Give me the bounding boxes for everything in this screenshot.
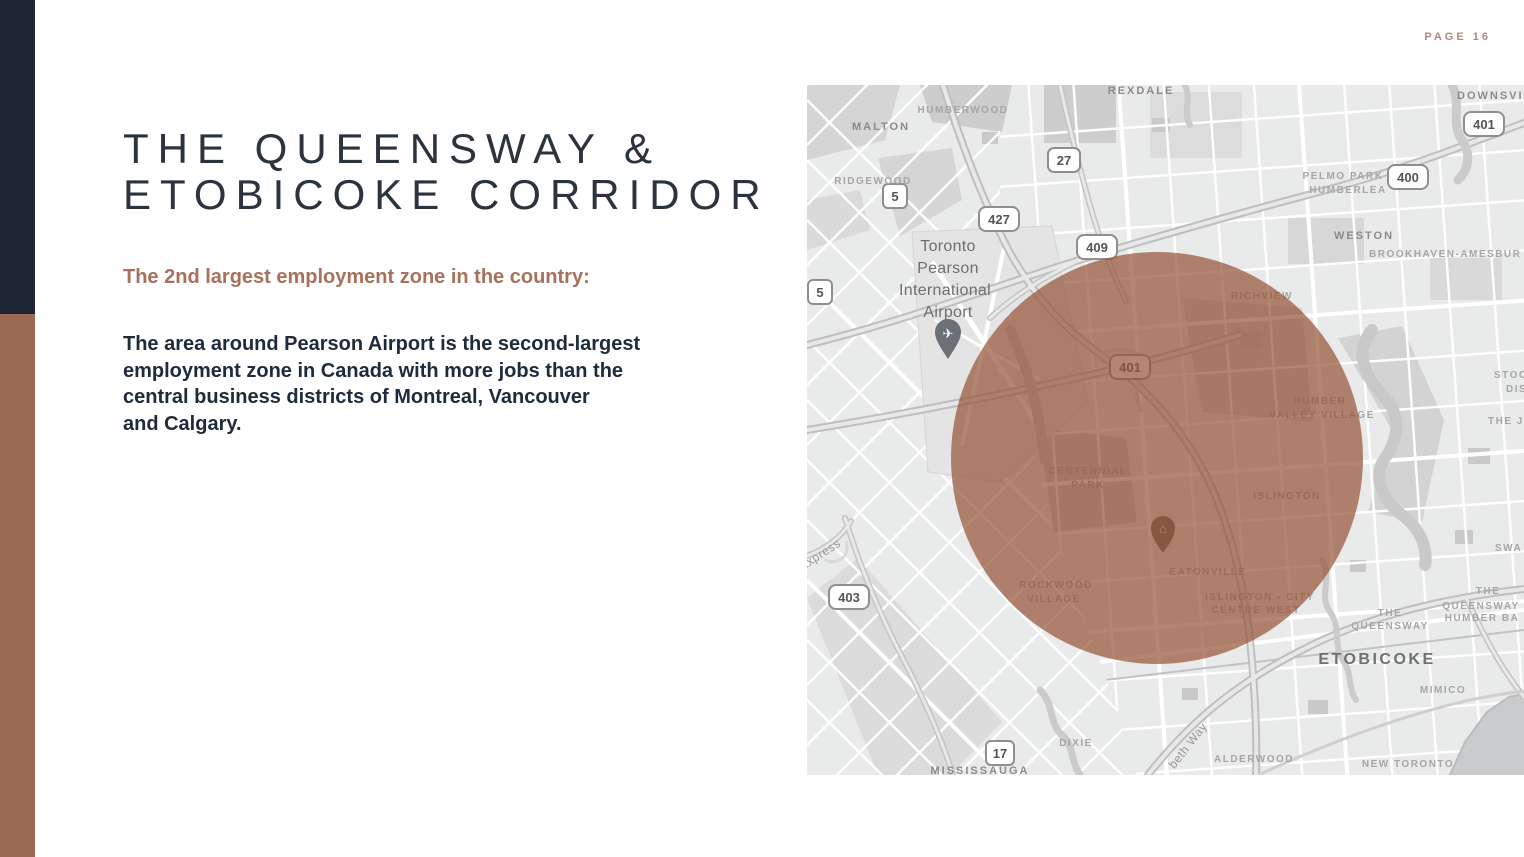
map-label-new-toronto: NEW TORONTO [1362, 759, 1454, 770]
body-paragraph: The area around Pearson Airport is the s… [123, 331, 640, 437]
map-label-malton: MALTON [852, 121, 910, 133]
map-label-the-queensway-2a: THE [1476, 586, 1501, 597]
title-line-2: ETOBICOKE CORRIDOR [123, 171, 770, 218]
map-label-dixie: DIXIE [1059, 738, 1093, 749]
svg-text:5: 5 [891, 189, 898, 204]
shield-5: 5 [883, 184, 907, 208]
svg-text:427: 427 [988, 212, 1010, 227]
shield-403: 403 [829, 585, 869, 609]
sidebar-accent-brown [0, 314, 35, 857]
map-label-the-queensway-1b: QUEENSWAY [1351, 621, 1429, 632]
map-label-stockyards: STOC [1494, 370, 1524, 381]
body-line: and Calgary. [123, 411, 640, 438]
map-label-ridgewood: RIDGEWOOD [834, 176, 911, 187]
map-label-humberlea: HUMBERLEA [1309, 185, 1386, 196]
shield-5: 5 [808, 280, 832, 304]
map-label-mimico: MIMICO [1420, 685, 1466, 696]
map-svg: 27 5 5 427 409 401 400 401 403 17 HUMBER… [807, 85, 1524, 775]
shield-400: 400 [1388, 165, 1428, 189]
map-label-mississauga: MISSISSAUGA [930, 765, 1029, 775]
svg-text:Airport: Airport [923, 304, 972, 321]
map-label-rexdale: REXDALE [1108, 85, 1175, 97]
svg-text:17: 17 [993, 746, 1007, 761]
shield-17: 17 [986, 741, 1014, 765]
map-label-brookhaven: BROOKHAVEN-AMESBUR [1369, 249, 1521, 260]
map-label-humberwood: HUMBERWOOD [918, 105, 1009, 116]
map-label-district: DIS [1506, 384, 1524, 395]
page-number: PAGE 16 [1424, 31, 1491, 43]
map-label-humber-bay: HUMBER BA [1445, 613, 1520, 624]
map-label-weston: WESTON [1334, 230, 1394, 242]
map-label-alderwood: ALDERWOOD [1214, 754, 1294, 765]
svg-text:5: 5 [816, 285, 823, 300]
subtitle: The 2nd largest employment zone in the c… [123, 266, 590, 289]
svg-text:Pearson: Pearson [917, 260, 979, 277]
map-label-etobicoke: ETOBICOKE [1318, 651, 1435, 668]
svg-text:Toronto: Toronto [920, 238, 975, 255]
title-line-1: THE QUEENSWAY & [123, 125, 661, 172]
svg-text:International: International [899, 282, 991, 299]
shield-27: 27 [1048, 148, 1080, 172]
svg-text:403: 403 [838, 590, 860, 605]
shield-401: 401 [1464, 112, 1504, 136]
svg-text:27: 27 [1057, 153, 1071, 168]
map-image: 27 5 5 427 409 401 400 401 403 17 HUMBER… [807, 85, 1524, 775]
map-label-swansea: SWA [1495, 543, 1522, 554]
shield-409: 409 [1077, 235, 1117, 259]
page-title: THE QUEENSWAY &ETOBICOKE CORRIDOR [123, 126, 770, 218]
svg-text:409: 409 [1086, 240, 1108, 255]
map-label-downsview: DOWNSVIE [1457, 90, 1524, 102]
map-label-the-queensway-1a: THE [1378, 608, 1403, 619]
body-line: The area around Pearson Airport is the s… [123, 331, 640, 358]
map-label-the-junction: THE J [1488, 416, 1524, 427]
svg-text:401: 401 [1473, 117, 1495, 132]
shield-427: 427 [979, 207, 1019, 231]
body-line: employment zone in Canada with more jobs… [123, 358, 640, 385]
slide-page: PAGE 16 THE QUEENSWAY &ETOBICOKE CORRIDO… [0, 0, 1524, 857]
body-line: central business districts of Montreal, … [123, 384, 640, 411]
airplane-icon: ✈ [943, 326, 954, 341]
radius-overlay-circle [951, 252, 1363, 664]
sidebar-accent-navy [0, 0, 35, 314]
svg-text:400: 400 [1397, 170, 1419, 185]
map-label-pelmo-park: PELMO PARK [1303, 171, 1384, 182]
map-label-the-queensway-2b: QUEENSWAY [1442, 601, 1520, 612]
